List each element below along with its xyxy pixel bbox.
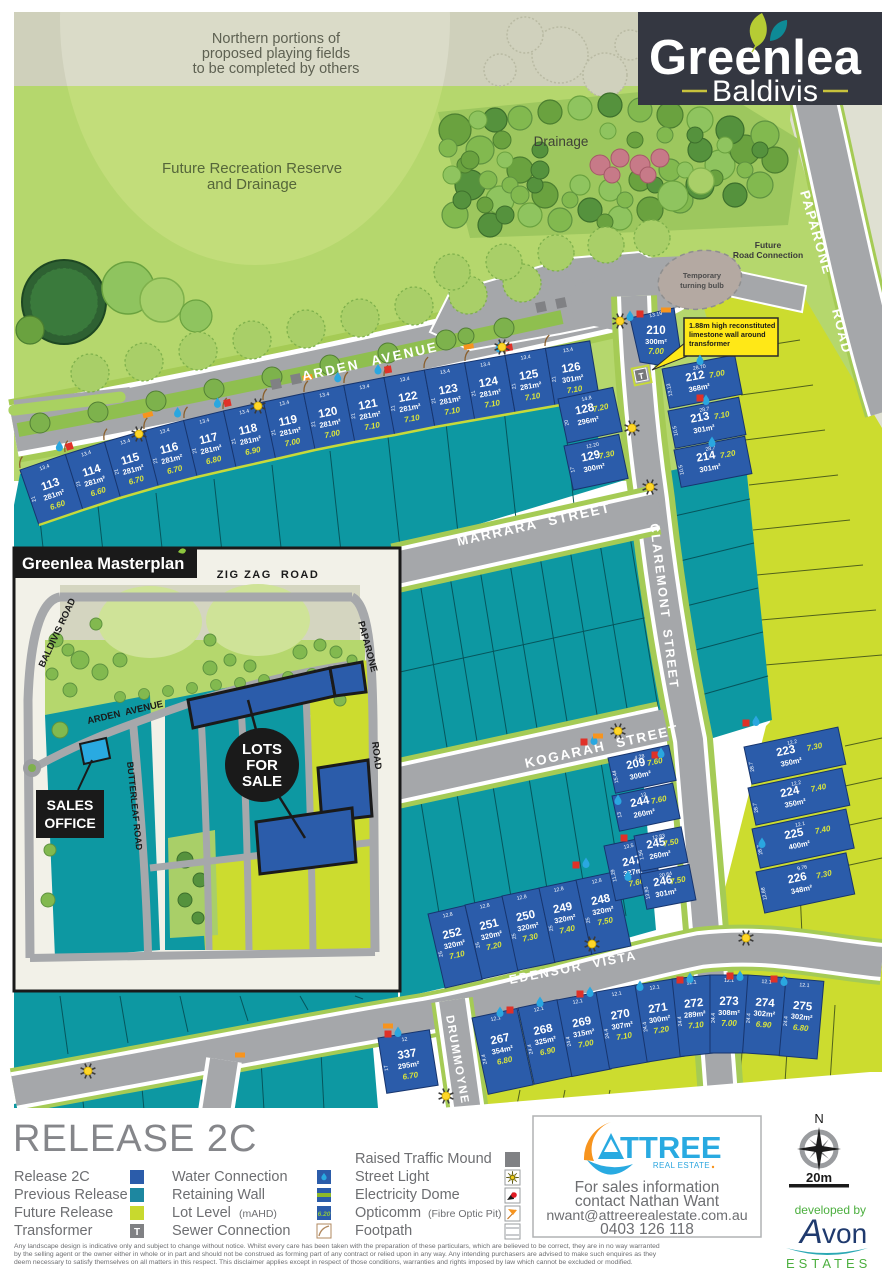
svg-text:20m: 20m — [806, 1170, 832, 1185]
svg-text:Northern portions of: Northern portions of — [212, 31, 341, 47]
svg-text:6.80: 6.80 — [793, 1023, 810, 1033]
svg-text:and Drainage: and Drainage — [207, 176, 297, 193]
svg-text:302m²: 302m² — [753, 1008, 776, 1019]
svg-text:SALE: SALE — [242, 773, 282, 790]
svg-text:21: 21 — [511, 383, 518, 390]
svg-text:limestone wall around: limestone wall around — [689, 330, 766, 339]
svg-text:SALES: SALES — [47, 797, 94, 813]
svg-text:12: 12 — [401, 1036, 408, 1043]
svg-text:0403 126 118: 0403 126 118 — [600, 1221, 694, 1238]
svg-text:7.00: 7.00 — [648, 347, 664, 356]
svg-text:(Fibre Optic Pit): (Fibre Optic Pit) — [428, 1208, 502, 1220]
svg-text:Future: Future — [755, 240, 782, 250]
svg-text:6.20: 6.20 — [318, 1211, 331, 1218]
svg-text:Street Light: Street Light — [355, 1169, 429, 1185]
svg-text:273: 273 — [719, 996, 738, 1008]
svg-text:N: N — [814, 1111, 823, 1126]
svg-text:deem necessary to satisfy them: deem necessary to satisfy themselves on … — [14, 1259, 633, 1266]
svg-text:12.1: 12.1 — [799, 982, 810, 989]
svg-text:Raised Traffic Mound: Raised Traffic Mound — [355, 1151, 492, 1167]
svg-text:by the selling agent or the ow: by the selling agent or the owner either… — [14, 1251, 657, 1258]
svg-text:TTREE: TTREE — [620, 1130, 722, 1165]
svg-text:24.4: 24.4 — [746, 1013, 753, 1024]
svg-text:REAL ESTATE: REAL ESTATE — [653, 1161, 710, 1170]
svg-text:LOTS: LOTS — [242, 741, 282, 758]
svg-text:Any landscape design is indica: Any landscape design is indicative only … — [14, 1243, 660, 1250]
svg-text:300m²: 300m² — [645, 337, 667, 346]
svg-text:transformer: transformer — [689, 339, 730, 348]
svg-text:Water Connection: Water Connection — [172, 1169, 288, 1185]
svg-text:ZIG ZAG ROAD: ZIG ZAG ROAD — [217, 569, 320, 581]
svg-text:1.88m high reconstituted: 1.88m high reconstituted — [689, 321, 775, 330]
svg-text:Drainage: Drainage — [534, 134, 589, 149]
svg-text:to be completed by others: to be completed by others — [193, 61, 360, 77]
svg-text:Greenlea Masterplan: Greenlea Masterplan — [22, 555, 184, 573]
svg-text:ESTATES: ESTATES — [786, 1256, 871, 1271]
svg-text:6.90: 6.90 — [755, 1020, 772, 1030]
svg-text:Retaining Wall: Retaining Wall — [172, 1187, 265, 1203]
svg-text:Sewer Connection: Sewer Connection — [172, 1223, 291, 1239]
svg-text:12.1: 12.1 — [761, 979, 772, 986]
svg-text:21: 21 — [390, 405, 397, 412]
svg-text:OFFICE: OFFICE — [44, 815, 95, 831]
svg-text:Future Recreation Reserve: Future Recreation Reserve — [162, 160, 342, 177]
svg-text:17: 17 — [383, 1065, 390, 1072]
svg-text:proposed playing fields: proposed playing fields — [202, 46, 350, 62]
svg-text:Release 2C: Release 2C — [14, 1169, 90, 1185]
svg-text:24.4: 24.4 — [677, 1016, 684, 1027]
svg-text:21: 21 — [471, 390, 478, 397]
svg-text:Transformer: Transformer — [14, 1223, 93, 1239]
svg-text:210: 210 — [646, 325, 665, 337]
svg-text:7.10: 7.10 — [688, 1020, 705, 1031]
svg-text:21: 21 — [551, 376, 558, 383]
svg-text:302m²: 302m² — [790, 1012, 813, 1023]
svg-text:Temporary: Temporary — [683, 271, 722, 280]
svg-text:Footpath: Footpath — [355, 1223, 412, 1239]
svg-text:FOR: FOR — [246, 757, 278, 774]
svg-text:(mAHD): (mAHD) — [239, 1208, 277, 1220]
svg-text:Future Release: Future Release — [14, 1205, 113, 1221]
svg-text:Previous Release: Previous Release — [14, 1187, 128, 1203]
svg-text:von: von — [822, 1218, 867, 1249]
svg-text:24.4: 24.4 — [711, 1013, 717, 1023]
svg-text:21: 21 — [431, 397, 438, 404]
svg-text:308m²: 308m² — [718, 1008, 740, 1017]
svg-text:Electricity Dome: Electricity Dome — [355, 1187, 460, 1203]
svg-text:24.4: 24.4 — [783, 1016, 790, 1027]
svg-text:Lot Level: Lot Level — [172, 1205, 231, 1221]
svg-text:A: A — [798, 1213, 823, 1251]
svg-text:RELEASE 2C: RELEASE 2C — [13, 1118, 257, 1160]
svg-text:turning bulb: turning bulb — [680, 281, 724, 290]
svg-text:T: T — [134, 1227, 140, 1238]
svg-text:Baldivis: Baldivis — [712, 75, 818, 108]
svg-text:Road Connection: Road Connection — [733, 250, 803, 260]
svg-text:Opticomm: Opticomm — [355, 1205, 421, 1221]
svg-text:7.00: 7.00 — [721, 1019, 737, 1028]
